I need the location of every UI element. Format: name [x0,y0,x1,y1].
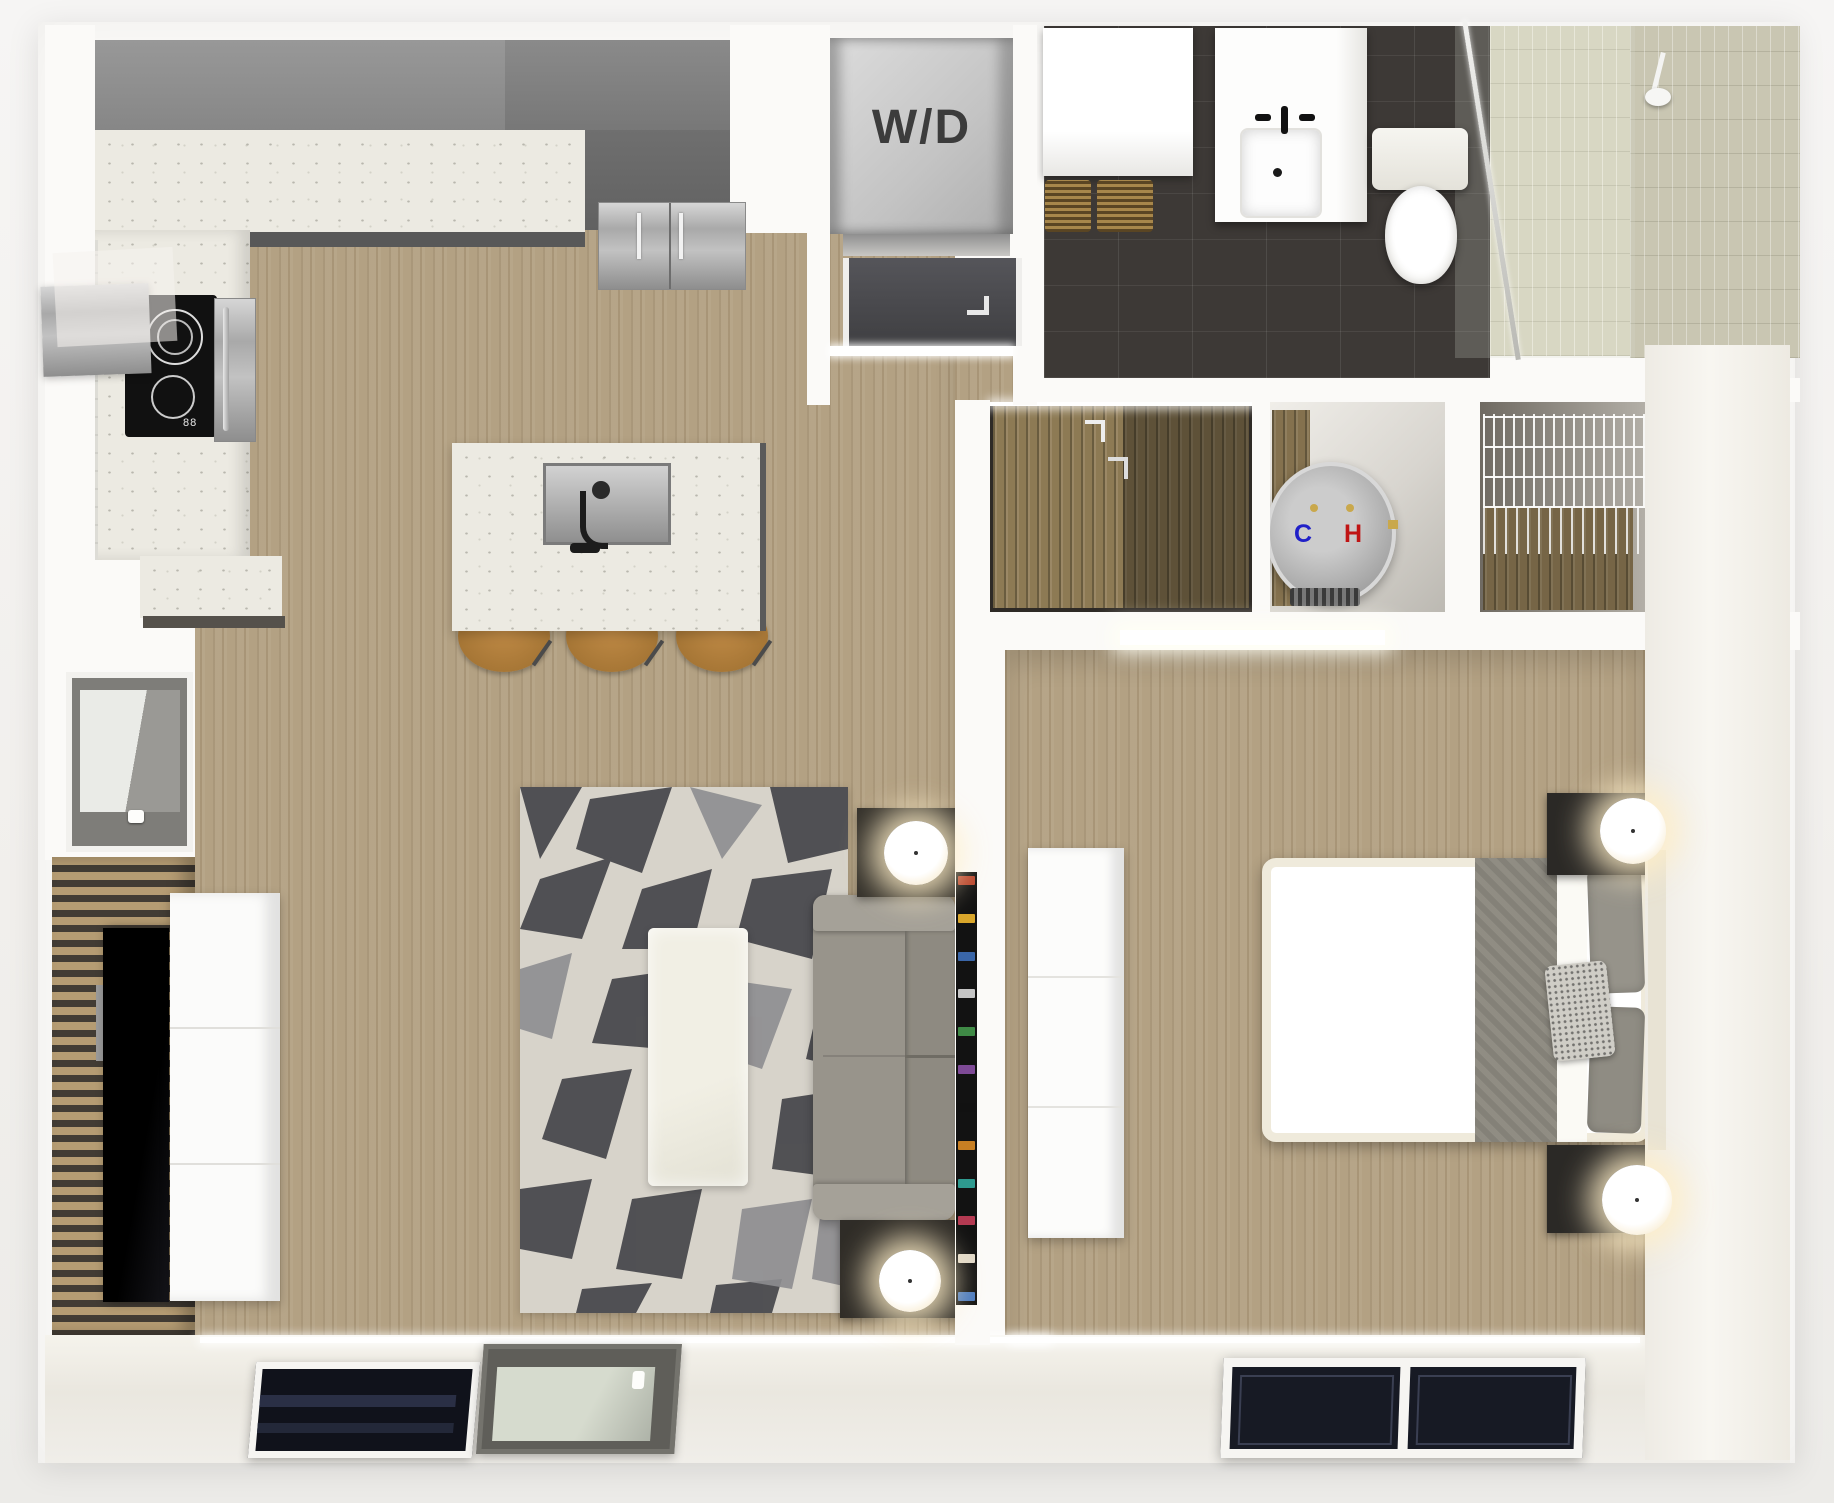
hot-water-label: H [1344,520,1362,549]
wd-closet-shadow [843,234,1010,256]
water-heater-closet: C H [1270,402,1445,612]
lamp-finial [1631,829,1635,833]
bathroom-shelf [1043,28,1193,176]
faucet-spout [1281,106,1288,134]
living-bottom-window-1 [248,1362,480,1458]
kitchen-upper-cabinets-right [505,40,730,132]
kitchen-upper-cabinets-left [62,40,505,132]
book-spine [958,1179,975,1188]
refrigerator-front [598,202,746,290]
floor-plan-render: 88 W/D [0,0,1834,1503]
coat-closet [990,402,1252,612]
fridge-door-seam [669,203,671,289]
sofa [813,895,955,1220]
book-spine [958,876,975,885]
nightstand-lamp-top [1600,798,1666,864]
sofa-back-seam [905,1055,955,1058]
living-bottom-window-2 [476,1344,682,1454]
valve-side [1388,520,1398,529]
media-console [170,893,280,1301]
counter-front-edge [250,232,585,247]
window-latch [632,1371,645,1389]
closet-divider-2 [1445,402,1480,614]
window-glass-row [259,1395,456,1407]
book-spine [958,1216,975,1225]
accent-pillow [1544,960,1616,1062]
wd-closet-left-wall [807,25,830,405]
wd-closet-right-wall [1013,25,1037,405]
shower-glass-tint [1455,26,1635,358]
console-seam-1 [170,1027,280,1029]
book-spine [958,1065,975,1074]
range-hood-glass [53,247,178,347]
lamp-finial [1635,1198,1639,1202]
bed [1262,858,1650,1142]
toilet-bowl [1385,186,1457,284]
closet-divider-1 [1252,402,1270,614]
counter-top [95,130,585,234]
valve-hot [1346,504,1354,512]
window-mullion [1398,1367,1411,1449]
cooktop-display: 88 [183,417,197,429]
window-inner-frame [1238,1375,1394,1445]
book-spine [958,1292,975,1301]
table-lamp-bottom [879,1250,941,1312]
counter-end-edge [143,616,285,628]
headboard [1648,850,1666,1150]
closet-handle-2b [1124,457,1128,479]
island-faucet-base [570,543,600,553]
entry-threshold [830,346,1013,356]
toilet-tank [1372,128,1468,190]
shower-head [1645,88,1671,106]
cold-water-label: C [1294,520,1312,549]
washer-dryer-unit: W/D [830,38,1013,234]
faucet-handle-left [1255,114,1271,121]
bookcase-shelf [958,1103,975,1112]
vanity-counter [1215,28,1367,222]
lamp-finial [908,1279,912,1283]
closet-handle-1b [1101,420,1105,442]
tv-screen [103,928,169,1302]
bedroom-right-wall [1645,345,1790,1460]
entry-door [843,258,1022,346]
entry-door-handle-stem [984,296,989,315]
fridge-handle-left [637,213,641,259]
valve-cold [1310,504,1318,512]
basket-1 [1045,180,1091,232]
fridge-handle-right [679,213,683,259]
window-inner-frame [1416,1375,1572,1445]
dresser-seam [1028,976,1124,978]
sofa-armrest-bottom [813,1184,955,1220]
burner-small [151,375,195,419]
bedroom-window-sill-line [1010,1337,1640,1343]
console-seam-2 [170,1163,280,1165]
book-spine [958,952,975,961]
bedroom-bottom-window [1220,1358,1585,1458]
closet-door-right [1123,406,1249,608]
sink-drain [1273,168,1282,177]
book-spine [958,1027,975,1036]
coffee-table [648,928,748,1186]
living-window-latch [128,810,144,823]
living-window-glass [80,690,180,812]
dresser-seam [1028,1106,1124,1108]
bedroom-ceiling-light [1120,630,1385,645]
bed-blanket [1475,858,1557,1142]
wall-oven [214,298,256,442]
oven-handle [223,307,229,431]
book-spine [958,914,975,923]
dresser [1028,848,1124,1238]
kitchen-island [452,443,760,631]
washer-dryer-label: W/D [830,100,1013,155]
bookcase [956,872,977,1305]
book-spine [958,1141,975,1150]
book-spine [958,1254,975,1263]
island-faucet-pipe [580,491,608,549]
living-window-frame [72,678,187,846]
basket-2 [1097,180,1153,232]
book-spine [958,989,975,998]
living-window-sill-line [200,1337,1050,1343]
nightstand-lamp-bottom [1602,1165,1672,1235]
counter-end-cap [140,556,282,618]
sofa-armrest-top [813,895,955,931]
heater-pipes [1290,588,1360,606]
water-heater-tank [1266,462,1396,604]
window-glass-row [257,1423,454,1433]
window-glass-pale [492,1367,655,1441]
sofa-seat-seam [823,1055,905,1057]
table-lamp-top [884,821,948,885]
faucet-handle-right [1299,114,1315,121]
lamp-finial [914,851,918,855]
